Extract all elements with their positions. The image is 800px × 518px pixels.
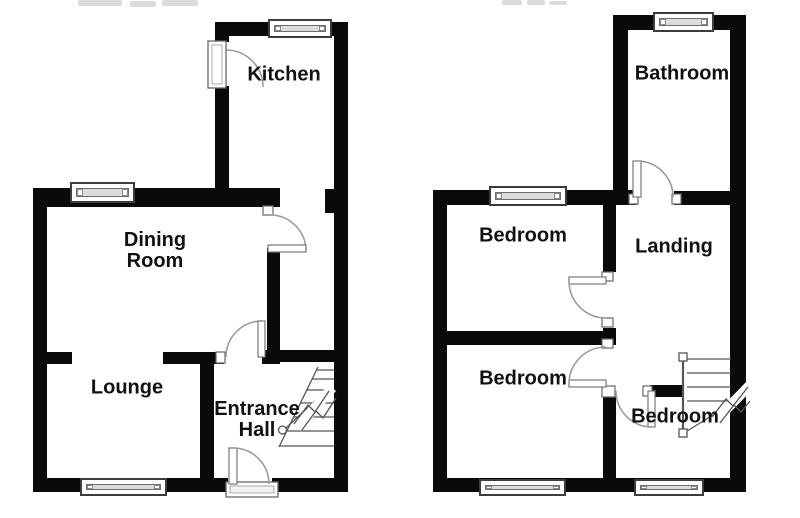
wall [325,189,348,213]
window [489,186,567,206]
window-glass [76,188,129,197]
room-label-bedroom-rear: Bedroom [631,407,719,428]
wall [334,22,348,492]
window-glass [274,25,326,32]
room-label-bathroom: Bathroom [635,64,729,85]
wall [33,352,72,364]
room-label-entrance-hall: Entrance Hall [205,399,309,441]
window [80,478,167,496]
wall [267,248,280,353]
window-glass [640,485,698,490]
room-label-bedroom-middle: Bedroom [479,369,567,390]
window [479,479,566,496]
window [70,182,135,203]
dining-corridor-door [263,206,306,252]
front-door [226,448,278,497]
floor-plan: Kitchen Dining Room Lounge Entrance Hall… [0,0,800,518]
wall [730,15,746,492]
bedroom-middle-door [569,339,615,397]
window [653,12,714,32]
room-label-kitchen: Kitchen [247,65,320,86]
wall [650,385,683,397]
wall [272,478,348,492]
room-label-dining-room: Dining Room [107,230,203,272]
window-glass [485,485,560,490]
wall [603,397,616,478]
window [268,19,332,38]
wall [613,15,628,190]
window [634,479,704,496]
wall [215,22,229,42]
window-glass [659,18,708,26]
room-label-landing: Landing [635,237,713,258]
room-label-bedroom-front: Bedroom [479,226,567,247]
wall [265,350,348,362]
wall [215,86,229,190]
cropped-text-artifact [527,0,545,5]
window-glass [86,484,161,490]
wall [603,205,616,272]
window-glass [495,192,561,200]
cropped-text-artifact [162,0,198,6]
bedroom-top-door [569,272,613,327]
cropped-text-artifact [78,0,122,6]
room-label-lounge: Lounge [91,378,163,399]
wall [33,188,47,492]
wall [163,352,224,364]
wall [674,191,746,205]
wall [433,331,616,345]
cropped-text-artifact [502,0,522,5]
wall [603,328,616,340]
cropped-text-artifact [130,1,156,7]
cropped-text-artifact [549,1,567,5]
